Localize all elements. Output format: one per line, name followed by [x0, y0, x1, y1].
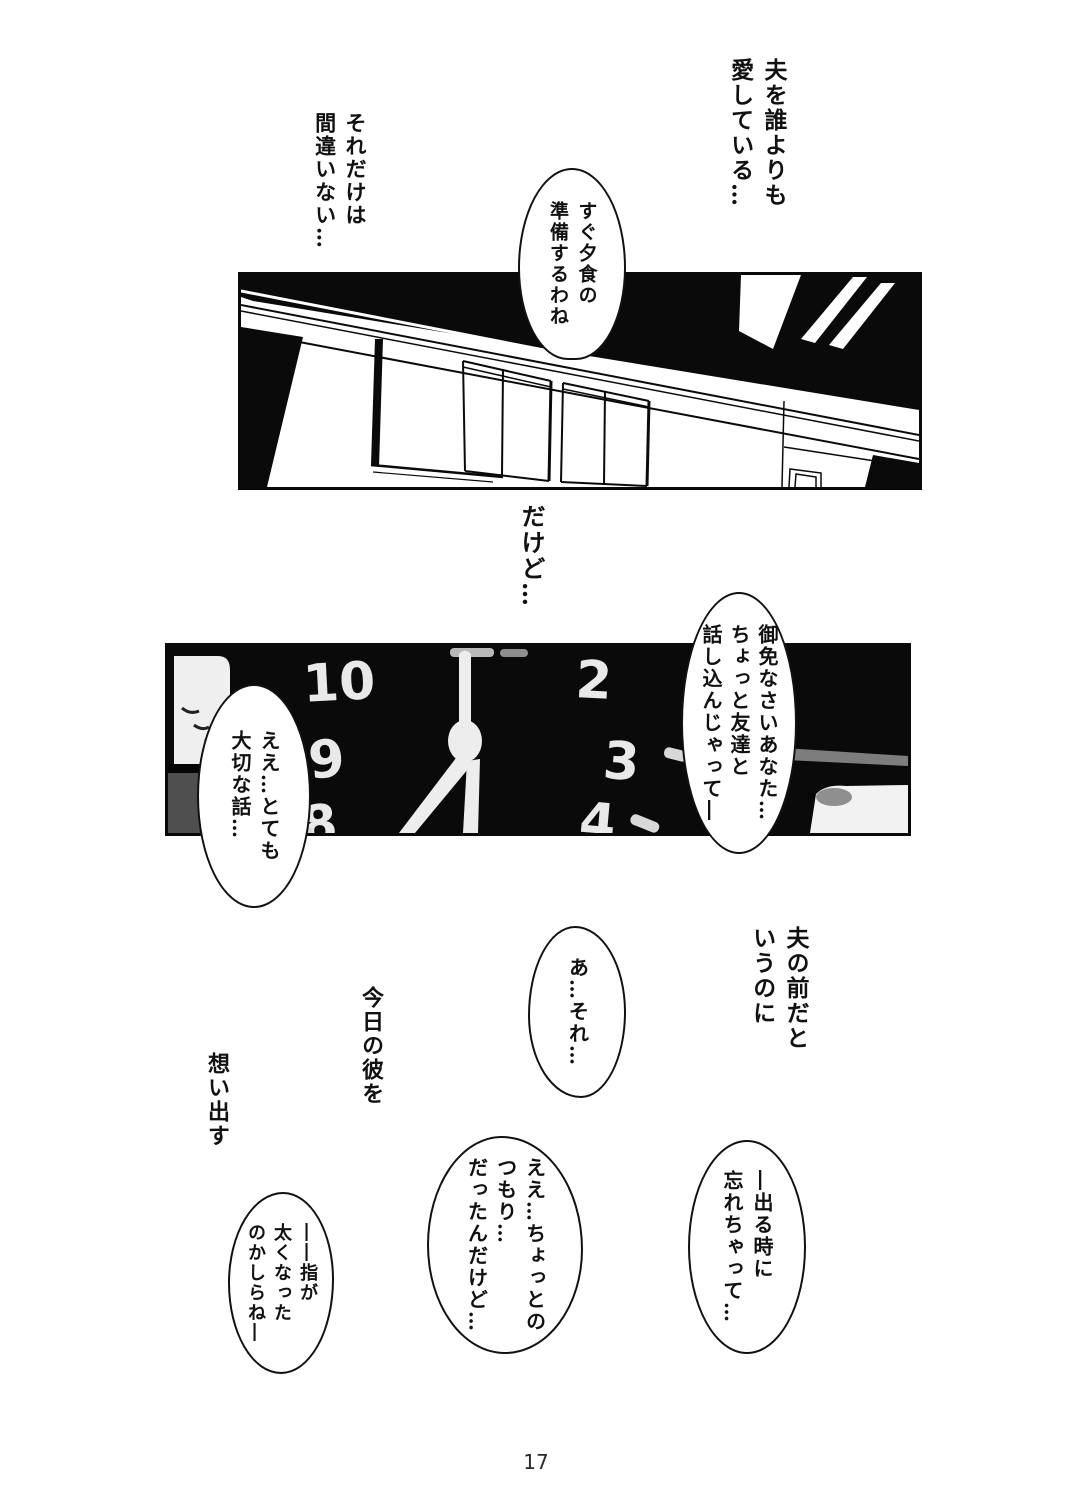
narration-recall: 想い出す	[200, 1052, 232, 1148]
bubble-line: 準備するわね	[544, 201, 573, 327]
speech-bubble-text: ―出る時に 忘れちゃって…	[717, 1170, 777, 1324]
clock-numeral-3: 3	[601, 731, 641, 793]
speech-bubble-just-meant-a-little: ええ…ちょっとの つもり… だったんだけど…	[427, 1136, 583, 1354]
narration-no-mistake: それだけは 間違いない…	[309, 112, 370, 250]
narration-line: それだけは	[340, 112, 370, 250]
speech-bubble-text: あ…それ…	[563, 957, 592, 1067]
bubble-line: 太くなった	[268, 1223, 294, 1343]
bubble-line: だったんだけど…	[462, 1157, 491, 1333]
clock-numeral-4: 4	[577, 792, 618, 833]
speech-bubble-important-talk: ええ…とても 大切な話…	[197, 684, 311, 908]
narration-todays-him: 今日の彼を	[354, 986, 386, 1106]
narration-love-husband: 夫を誰よりも 愛している…	[723, 58, 790, 208]
narration-line: いうのに	[745, 926, 778, 1051]
clock-brand-smudge	[450, 648, 494, 657]
bubble-line: あ…それ…	[563, 957, 592, 1067]
narration-line: だけど…	[513, 504, 548, 608]
bubble-line: すぐ夕食の	[572, 201, 601, 327]
bubble-line: ええ…ちょっとの	[520, 1157, 549, 1333]
narration-line: 想い出す	[200, 1052, 232, 1148]
narration-line: 愛している…	[723, 58, 756, 208]
clock-numeral-10: 10	[301, 651, 376, 715]
bubble-line: ええ…とても	[254, 730, 283, 862]
bubble-line: ――指が	[294, 1223, 320, 1343]
narration-front-of-husband: 夫の前だと いうのに	[745, 926, 812, 1051]
speech-bubble-text: すぐ夕食の 準備するわね	[544, 201, 601, 327]
clock-numeral-2: 2	[574, 650, 613, 712]
narration-line: 間違いない…	[309, 112, 339, 250]
bubble-line: 大切な話…	[225, 730, 254, 862]
page-number: 17	[0, 1450, 1072, 1474]
speech-bubble-text: ええ…とても 大切な話…	[225, 730, 283, 862]
narration-line: 夫を誰よりも	[757, 58, 790, 208]
speech-bubble-ah-that: あ…それ…	[528, 926, 626, 1098]
bubble-line: ちょっと友達と	[725, 624, 753, 822]
bubble-line: つもり…	[491, 1157, 520, 1333]
speech-bubble-text: ――指が 太くなった のかしらね―	[242, 1223, 320, 1343]
narration-line: 今日の彼を	[354, 986, 386, 1106]
bubble-line: 忘れちゃって…	[717, 1170, 747, 1324]
narration-however: だけど…	[513, 504, 548, 608]
manga-page: 夫を誰よりも 愛している… それだけは 間違いない… すぐ夕食の 準備するわね	[0, 0, 1072, 1500]
speech-bubble-text: ええ…ちょっとの つもり… だったんだけど…	[462, 1157, 549, 1333]
bubble-line: 話し込んじゃって―	[697, 624, 725, 822]
speech-bubble-text: 御免なさいあなた… ちょっと友達と 話し込んじゃって―	[697, 624, 781, 822]
speech-bubble-sorry-dear: 御免なさいあなた… ちょっと友達と 話し込んじゃって―	[681, 592, 797, 854]
bubble-line: のかしらね―	[242, 1223, 268, 1343]
speech-bubble-fingers-thicker: ――指が 太くなった のかしらね―	[228, 1192, 334, 1374]
clock-numeral-9: 9	[306, 729, 347, 792]
speech-bubble-prepare-dinner: すぐ夕食の 準備するわね	[518, 168, 626, 360]
speech-bubble-forgot-when-leaving: ―出る時に 忘れちゃって…	[688, 1140, 806, 1354]
bubble-line: ―出る時に	[747, 1170, 777, 1324]
bubble-line: 御免なさいあなた…	[753, 624, 781, 822]
narration-line: 夫の前だと	[779, 926, 812, 1051]
